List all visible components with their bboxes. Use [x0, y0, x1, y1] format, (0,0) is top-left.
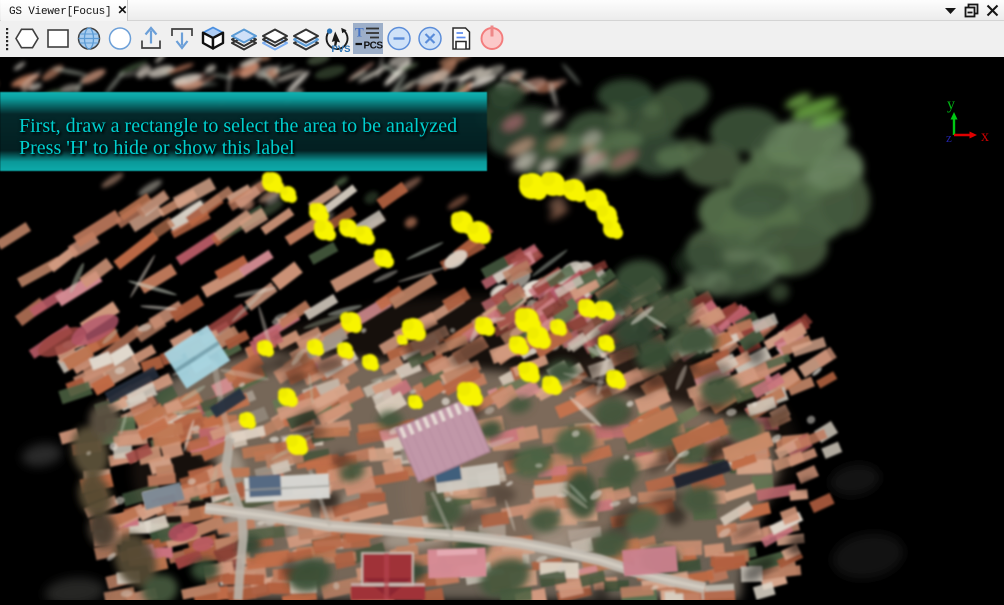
svg-text:x: x [981, 128, 989, 145]
svg-text:z: z [946, 130, 952, 145]
svg-text:T: T [355, 25, 364, 40]
svg-text:PCS: PCS [364, 41, 384, 52]
svg-text:PVS: PVS [331, 44, 350, 55]
svg-text:y: y [947, 96, 955, 113]
